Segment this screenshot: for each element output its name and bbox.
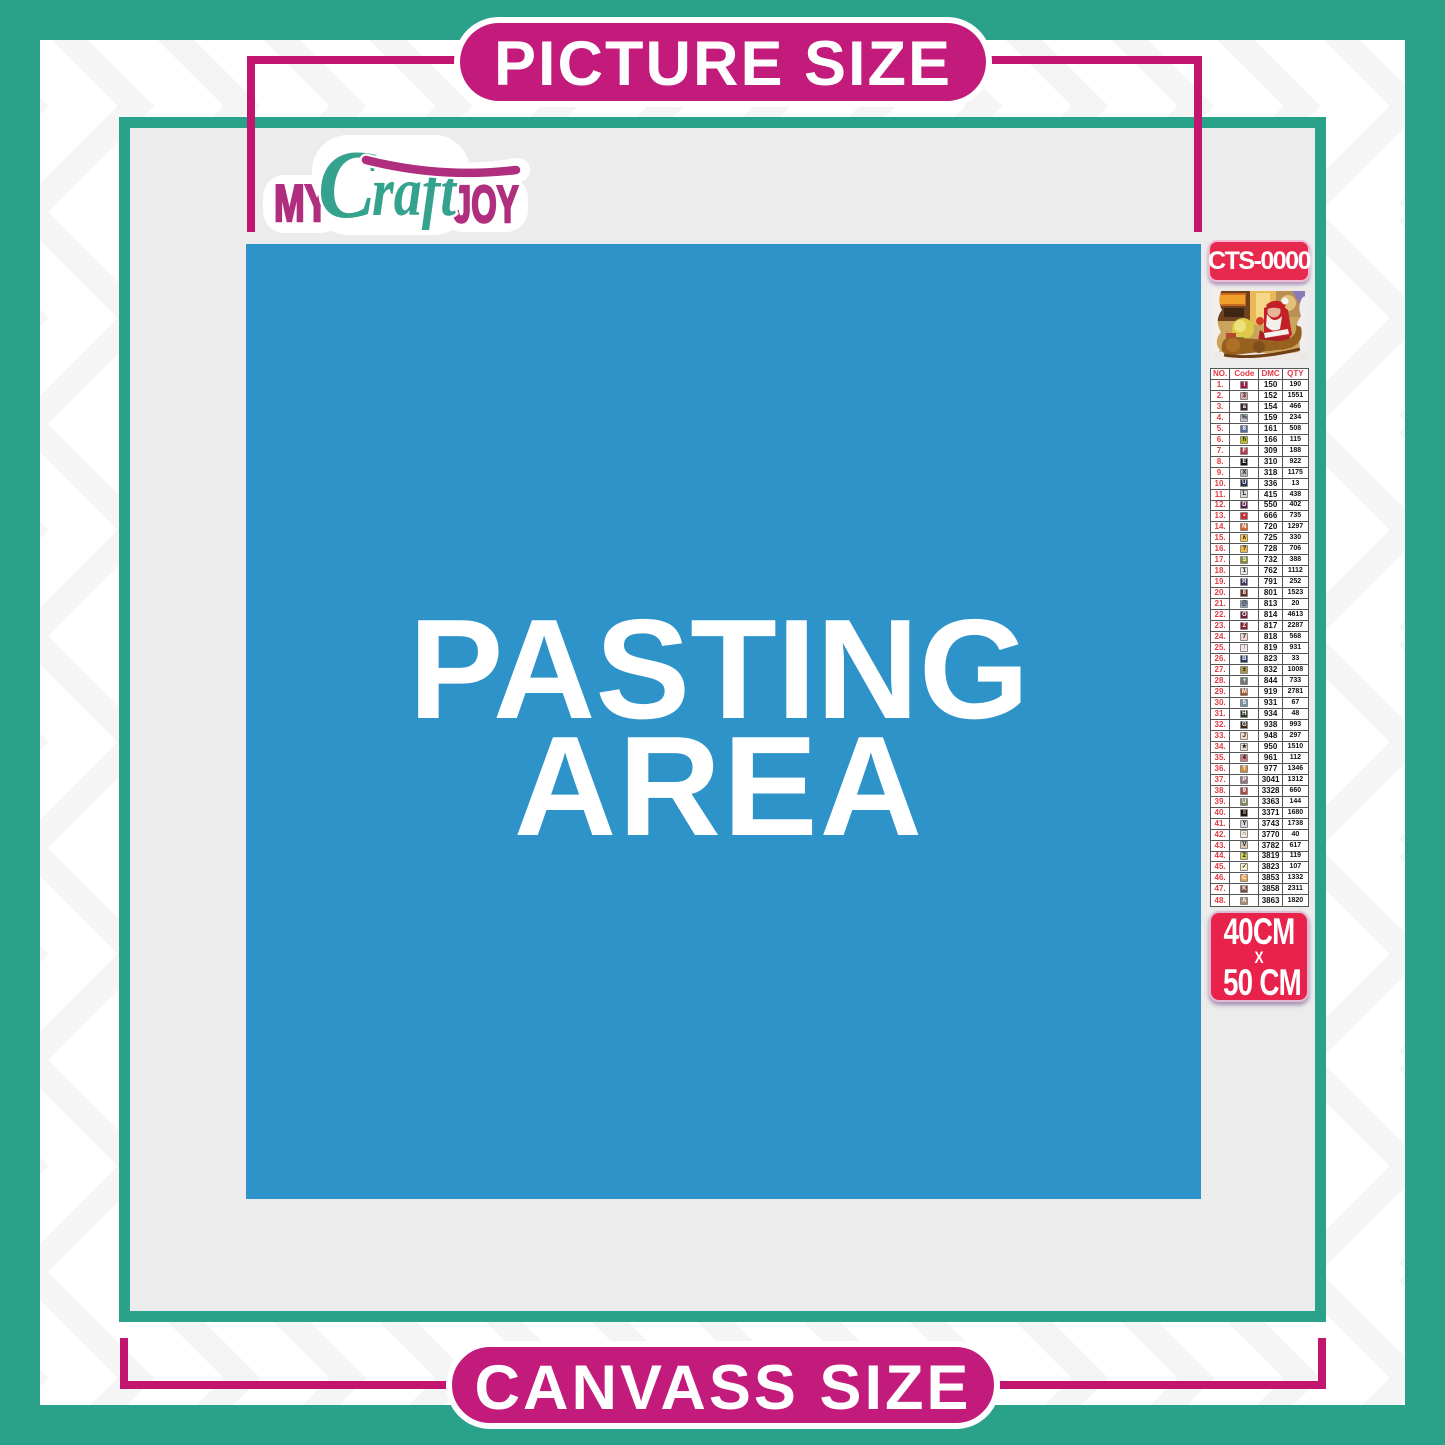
svg-text:JOY: JOY xyxy=(453,177,519,234)
svg-text:C: C xyxy=(318,130,377,238)
